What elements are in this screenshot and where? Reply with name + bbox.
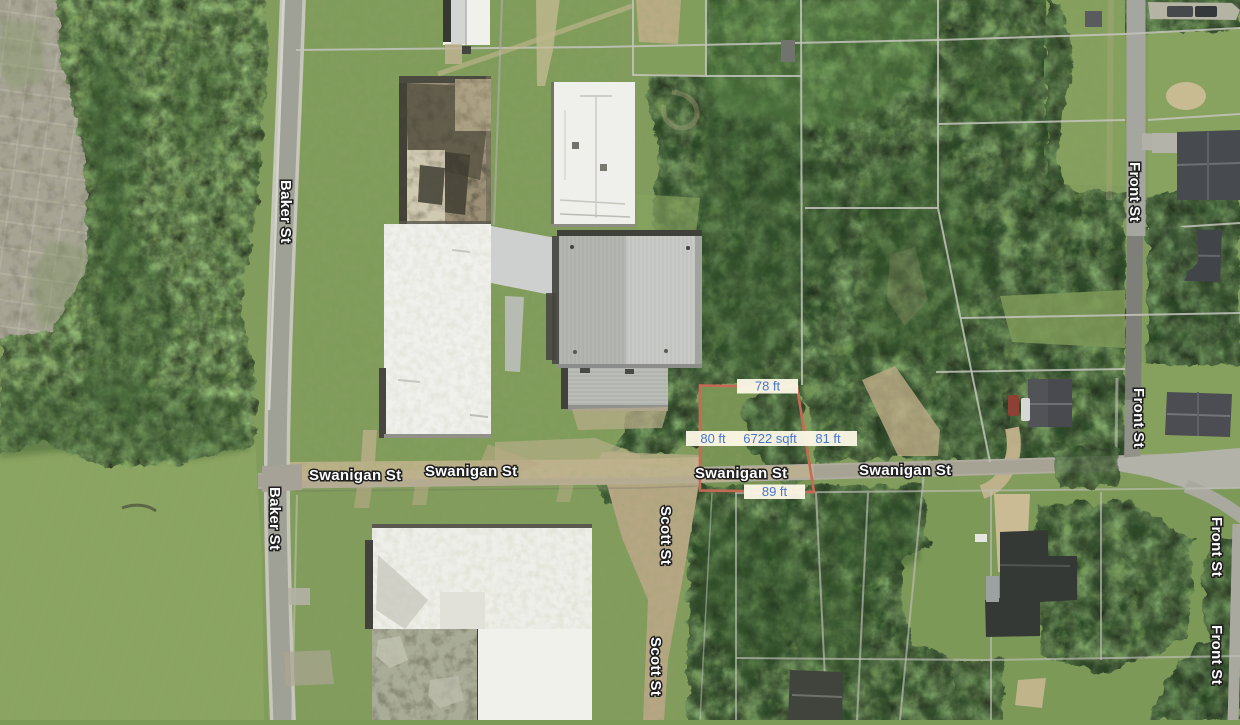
svg-text:80 ft: 80 ft <box>700 431 726 446</box>
svg-text:6722 sqft: 6722 sqft <box>743 431 797 446</box>
svg-text:Baker St: Baker St <box>266 487 283 550</box>
svg-text:Front St: Front St <box>1208 625 1225 685</box>
svg-text:81 ft: 81 ft <box>815 431 841 446</box>
svg-text:78 ft: 78 ft <box>755 379 781 394</box>
svg-text:Swanigan St: Swanigan St <box>425 463 517 480</box>
svg-text:89 ft: 89 ft <box>762 484 788 499</box>
svg-text:Front St: Front St <box>1130 388 1147 448</box>
svg-text:Swanigan St: Swanigan St <box>695 465 787 482</box>
svg-text:Swanigan St: Swanigan St <box>859 462 951 479</box>
svg-text:Front St: Front St <box>1208 517 1225 577</box>
svg-text:Scott St: Scott St <box>657 506 674 565</box>
svg-text:Swanigan St: Swanigan St <box>309 467 401 484</box>
svg-text:Front St: Front St <box>1126 162 1143 222</box>
svg-text:Scott St: Scott St <box>647 637 664 696</box>
svg-text:Baker St: Baker St <box>277 180 294 243</box>
